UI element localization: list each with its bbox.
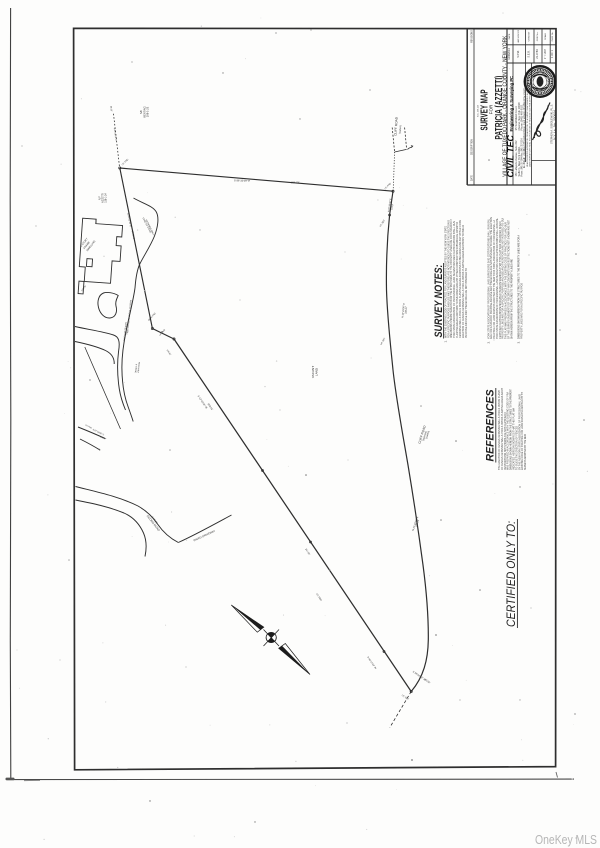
- svg-text:108-1-24: 108-1-24: [104, 193, 107, 203]
- svg-text:CIVIL TEC: CIVIL TEC: [505, 134, 515, 177]
- svg-text:DWG No.: DWG No.: [552, 31, 554, 41]
- svg-text:DESCRIPTION: DESCRIPTION: [472, 139, 474, 155]
- svg-text:(varies): (varies): [398, 125, 403, 134]
- svg-text:FOR: FOR: [488, 104, 493, 114]
- svg-text:PURPOSE AND USE AND THEREFORE: PURPOSE AND USE AND THEREFORE ARE NOT IN…: [464, 268, 468, 338]
- svg-text:S.P.W.: S.P.W.: [516, 50, 520, 58]
- svg-text:SURVEYS ADOPTED BY THE NEW: SURVEYS ADOPTED BY THE NEW: [523, 434, 527, 470]
- svg-text:35 Smithfield Court: 35 Smithfield Court: [515, 106, 518, 130]
- svg-text:108-1-23: 108-1-23: [145, 106, 149, 117]
- svg-text:2.: 2.: [486, 341, 490, 344]
- svg-text:Suffern, New York 10901: Suffern, New York 10901: [518, 146, 521, 177]
- svg-text:S.E.B.: S.E.B.: [527, 50, 531, 58]
- svg-text:OneKey MLS: OneKey MLS: [535, 832, 597, 847]
- svg-text:N.Y. Lic. No. 050604: N.Y. Lic. No. 050604: [553, 109, 556, 140]
- svg-text:12/9/2014: 12/9/2014: [507, 48, 511, 60]
- svg-text:SURVEY NOTES:: SURVEY NOTES:: [433, 264, 445, 337]
- svg-text:LAND: LAND: [315, 367, 319, 376]
- svg-text:REVISIONS: REVISIONS: [472, 30, 474, 43]
- svg-text:LAND SURVEYOR: LAND SURVEYOR: [517, 30, 520, 43]
- svg-text:SCALE: SCALE: [544, 32, 547, 40]
- svg-text:1.: 1.: [443, 340, 447, 343]
- svg-text:3.: 3.: [517, 341, 521, 344]
- svg-text:E-Mail: civiltec@optonline.net: E-Mail: civiltec@optonline.net www.civil…: [523, 88, 526, 168]
- svg-text:CERTIFIED ONLY TO:: CERTIFIED ONLY TO:: [506, 521, 518, 627]
- svg-text:DATE: DATE: [508, 33, 511, 39]
- svg-text:1" = 200': 1" = 200': [543, 48, 547, 59]
- svg-text:Chester, New York 10918: Chester, New York 10918: [518, 102, 521, 131]
- svg-text:S 86°33′09″ E: S 86°33′09″ E: [234, 178, 250, 183]
- svg-text:JOB No.: JOB No.: [537, 31, 539, 41]
- svg-text:PROPERTY LINES ARE FOR A SPECI: PROPERTY LINES ARE FOR A SPECIFIC PURPOS: [520, 283, 524, 339]
- svg-text:150 Lafayette Avenue, Suite 20: 150 Lafayette Avenue, Suite 202: [515, 140, 518, 177]
- svg-text:DATE: DATE: [471, 175, 474, 181]
- svg-text:364.73': 364.73': [291, 180, 300, 184]
- svg-text:REFERENCES: REFERENCES: [485, 389, 497, 462]
- svg-text:1 OF 1: 1 OF 1: [550, 49, 554, 57]
- svg-text:CHKD BY: CHKD BY: [529, 31, 531, 41]
- svg-text:Engineering & Surveying PC: Engineering & Surveying PC: [509, 76, 514, 132]
- svg-text:SHOWN HEREON FROM THE STRUCTUR: SHOWN HEREON FROM THE STRUCTURES TO THE …: [509, 259, 513, 339]
- svg-text:21-3784: 21-3784: [535, 49, 539, 59]
